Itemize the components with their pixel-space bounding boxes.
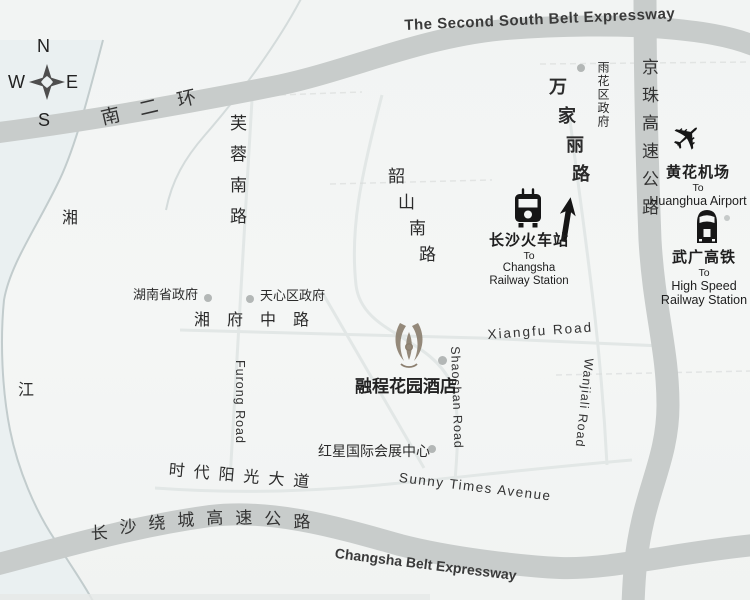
- airport-destination: 黄花机场 To Huanghua Airport: [648, 164, 748, 208]
- furong-road-en-label: Furong Road: [233, 360, 247, 444]
- railway-station-destination: 长沙火车站 To Changsha Railway Station: [464, 232, 594, 288]
- airport-en-line1: Huanghua Airport: [648, 194, 748, 208]
- hsr-to-label: To: [658, 267, 750, 279]
- wanjiali-road-cn-label: 万家丽路: [549, 73, 590, 189]
- train-station-icon: [513, 187, 543, 234]
- marker-dot-hunan-gov: [204, 294, 212, 302]
- marker-dot-hsr: [724, 215, 730, 221]
- compass-west-label: W: [8, 72, 25, 93]
- yuhua-district-gov-label: 雨花区政府: [595, 61, 612, 129]
- marker-dot-tianxin-gov: [246, 295, 254, 303]
- hsr-cn-label: 武广高铁: [658, 249, 750, 267]
- hsr-en-line2: Railway Station: [658, 293, 750, 307]
- compass-south-label: S: [38, 110, 50, 131]
- railway-station-en-line1: Changsha: [464, 262, 594, 275]
- hotel-name-label: 融程花园酒店: [355, 372, 457, 397]
- hsr-en-line1: High Speed: [658, 279, 750, 293]
- hotel-location-map: N W E S The Second South Belt Expressway…: [0, 0, 750, 600]
- xiang-river-char1-label: 湘: [62, 204, 78, 228]
- hongxing-exhibition-center-label: 红星国际会展中心: [318, 441, 430, 461]
- railway-station-to-label: To: [464, 250, 594, 262]
- hsr-destination: 武广高铁 To High Speed Railway Station: [658, 249, 750, 307]
- scan-edge-shadow: [0, 594, 430, 600]
- compass-icon: N W E S: [6, 36, 90, 132]
- furong-south-road-cn-label: 芙蓉南路: [224, 114, 249, 238]
- marker-dot-yuhua-gov: [577, 64, 585, 72]
- railway-station-en-line2: Railway Station: [464, 275, 594, 288]
- airport-to-label: To: [648, 182, 748, 194]
- marker-dot-hotel: [438, 356, 447, 365]
- xiangfu-middle-road-cn-label: 湘府中路: [194, 306, 326, 330]
- shaoshan-south-road-cn-label: 韶山南路: [388, 164, 436, 268]
- tianxin-district-gov-label: 天心区政府: [260, 285, 325, 304]
- railway-station-cn-label: 长沙火车站: [464, 232, 594, 250]
- compass-north-label: N: [37, 36, 50, 57]
- hotel-logo-icon: [389, 320, 429, 377]
- hunan-provincial-gov-label: 湖南省政府: [133, 284, 198, 303]
- xiang-river-char2-label: 江: [18, 376, 34, 400]
- compass-east-label: E: [66, 72, 78, 93]
- high-speed-train-icon: [694, 208, 720, 250]
- airport-cn-label: 黄花机场: [648, 164, 748, 182]
